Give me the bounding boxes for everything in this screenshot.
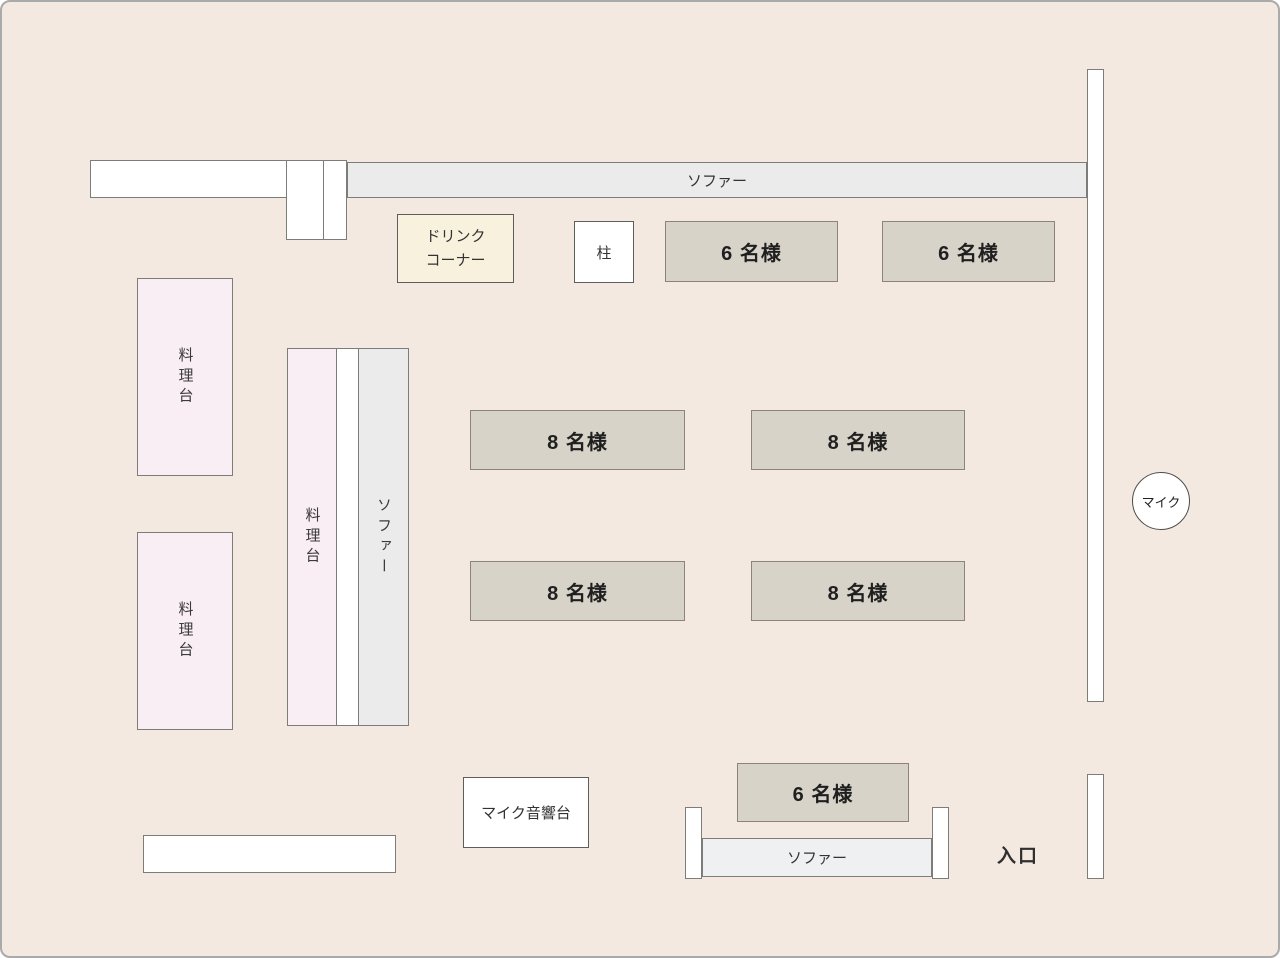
wall-right-short	[1087, 774, 1104, 879]
table-6-guests-bottom: 6 名様	[737, 763, 909, 822]
mic-sound-table: マイク音響台	[463, 777, 589, 848]
mic-circle: マイク	[1132, 472, 1190, 530]
island-sofa-label: ソファー	[373, 497, 394, 578]
mic-sound-table-label: マイク音響台	[481, 802, 571, 823]
table-label: 8 名様	[547, 577, 608, 606]
table-8-guests-row2-left: 8 名様	[470, 561, 685, 621]
table-label: 8 名様	[828, 426, 889, 455]
table-6-guests-top-left: 6 名様	[665, 221, 838, 282]
wall-right-long	[1087, 69, 1104, 702]
cooking-table-label: 料理台	[175, 347, 196, 408]
cooking-table-lower: 料理台	[137, 532, 233, 730]
sofa-bottom-label: ソファー	[787, 847, 847, 868]
table-label: 6 名様	[938, 237, 999, 266]
mic-label: マイク	[1142, 492, 1181, 511]
sofa-post-right	[932, 807, 949, 879]
wall-counter-top-left	[90, 160, 287, 198]
table-8-guests-row1-left: 8 名様	[470, 410, 685, 470]
floor-plan: ソファー ドリンク コーナー 柱 6 名様 6 名様 料理台 料理台 料理台 ソ…	[0, 0, 1280, 958]
wall-post-a	[286, 160, 324, 240]
pillar-box: 柱	[574, 221, 634, 283]
island-aisle	[336, 348, 359, 726]
sofa-top-label: ソファー	[687, 170, 747, 191]
cooking-table-upper: 料理台	[137, 278, 233, 476]
sofa-top: ソファー	[347, 162, 1087, 198]
sofa-post-left	[685, 807, 702, 879]
sofa-bottom: ソファー	[702, 838, 932, 877]
drink-corner-box: ドリンク コーナー	[397, 214, 514, 283]
table-8-guests-row2-right: 8 名様	[751, 561, 965, 621]
counter-bottom-left	[143, 835, 396, 873]
island-cooking-table: 料理台	[287, 348, 337, 726]
table-label: 8 名様	[828, 577, 889, 606]
island-sofa: ソファー	[358, 348, 409, 726]
table-label: 6 名様	[793, 778, 854, 807]
entrance-label: 入口	[997, 841, 1039, 868]
pillar-label: 柱	[596, 242, 611, 263]
drink-corner-label: ドリンク コーナー	[425, 225, 485, 272]
table-label: 8 名様	[547, 426, 608, 455]
table-label: 6 名様	[721, 237, 782, 266]
table-8-guests-row1-right: 8 名様	[751, 410, 965, 470]
cooking-table-label: 料理台	[175, 601, 196, 662]
island-cooking-label: 料理台	[302, 507, 323, 568]
wall-post-b	[323, 160, 347, 240]
table-6-guests-top-right: 6 名様	[882, 221, 1055, 282]
